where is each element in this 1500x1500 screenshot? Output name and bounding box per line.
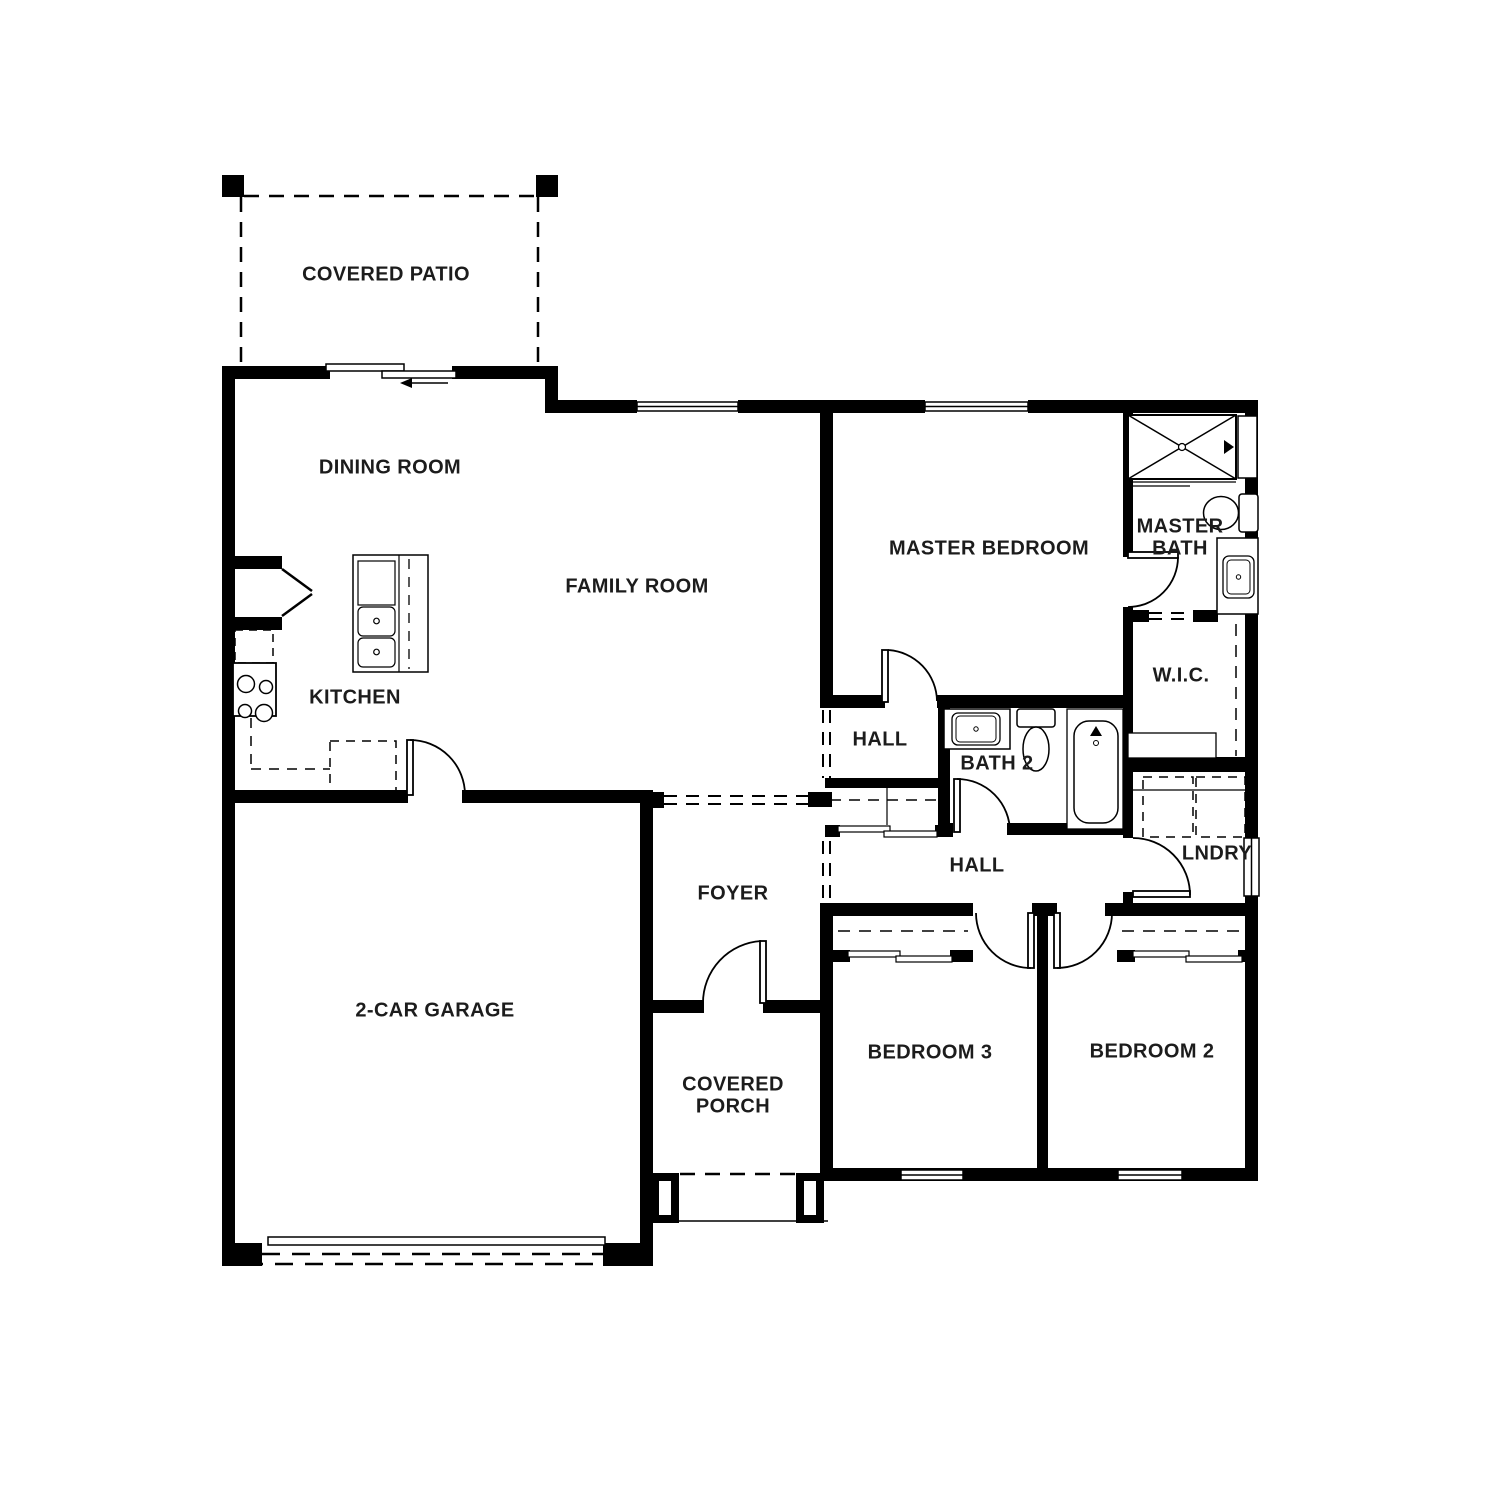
label-wic: W.I.C. bbox=[1153, 665, 1210, 688]
bedroom2-door bbox=[1054, 913, 1112, 968]
patio-post-right bbox=[536, 175, 558, 197]
dryer-icon bbox=[1196, 777, 1245, 837]
label-kitchen: KITCHEN bbox=[309, 687, 401, 710]
hall-closet bbox=[830, 788, 940, 837]
washer-icon bbox=[1143, 777, 1193, 837]
bedroom2-closet bbox=[1117, 915, 1258, 962]
kitchen-island-icon bbox=[353, 555, 428, 672]
bedroom3-window bbox=[901, 1170, 963, 1180]
label-garage: 2-CAR GARAGE bbox=[355, 1000, 514, 1023]
label-foyer: FOYER bbox=[698, 883, 769, 906]
label-dining-room: DINING ROOM bbox=[319, 457, 461, 480]
wic-shelf bbox=[1128, 733, 1216, 758]
patio-post-left bbox=[222, 175, 244, 197]
pantry-corner-door bbox=[282, 569, 312, 616]
label-laundry: LNDRY bbox=[1182, 843, 1252, 866]
front-door bbox=[703, 941, 766, 1003]
master-bedroom-window bbox=[925, 402, 1028, 411]
laundry-fixtures bbox=[1133, 777, 1258, 837]
bedroom3-door bbox=[976, 913, 1034, 968]
shower-icon bbox=[1128, 415, 1236, 486]
garage-door bbox=[245, 1237, 618, 1264]
label-family-room: FAMILY ROOM bbox=[565, 576, 708, 599]
dishwasher-icon bbox=[330, 741, 396, 792]
label-hall-upper: HALL bbox=[853, 729, 908, 752]
range-cooktop-icon bbox=[233, 663, 276, 722]
bypass-door-panel bbox=[896, 956, 952, 962]
label-covered-porch: COVERED PORCH bbox=[673, 1074, 793, 1119]
bypass-door-panel bbox=[1186, 956, 1242, 962]
label-covered-patio: COVERED PATIO bbox=[302, 264, 470, 287]
family-room-window bbox=[637, 402, 738, 411]
label-bedroom-2: BEDROOM 2 bbox=[1090, 1041, 1215, 1064]
porch-column bbox=[655, 1177, 675, 1219]
shower-niche bbox=[1238, 416, 1257, 478]
bedroom2-window bbox=[1118, 1170, 1182, 1180]
bypass-door-panel bbox=[848, 951, 900, 957]
bathtub-icon bbox=[1067, 709, 1123, 829]
bypass-door-panel bbox=[884, 831, 937, 837]
bath2-door bbox=[954, 779, 1010, 832]
refrigerator-icon bbox=[235, 630, 273, 663]
bath2-vanity-icon bbox=[944, 709, 1010, 749]
covered-porch-structure bbox=[652, 1174, 828, 1221]
floor-plan-drawing bbox=[0, 0, 1500, 1500]
bypass-door-panel bbox=[1133, 951, 1189, 957]
label-bath-2: BATH 2 bbox=[960, 753, 1033, 776]
kitchen-fixtures bbox=[233, 555, 428, 792]
floor-plan: COVERED PATIO DINING ROOM FAMILY ROOM KI… bbox=[0, 0, 1500, 1500]
sliding-patio-door bbox=[326, 364, 456, 388]
label-master-bedroom: MASTER BEDROOM bbox=[889, 538, 1089, 561]
label-bedroom-3: BEDROOM 3 bbox=[868, 1042, 993, 1065]
label-hall-lower: HALL bbox=[950, 855, 1005, 878]
garage-entry-door bbox=[407, 740, 465, 795]
wic-fixtures bbox=[1128, 624, 1236, 758]
label-master-bath: MASTER BATH bbox=[1115, 516, 1245, 561]
bypass-door-panel bbox=[838, 826, 890, 832]
master-bedroom-door bbox=[882, 650, 937, 702]
porch-column bbox=[800, 1177, 820, 1219]
